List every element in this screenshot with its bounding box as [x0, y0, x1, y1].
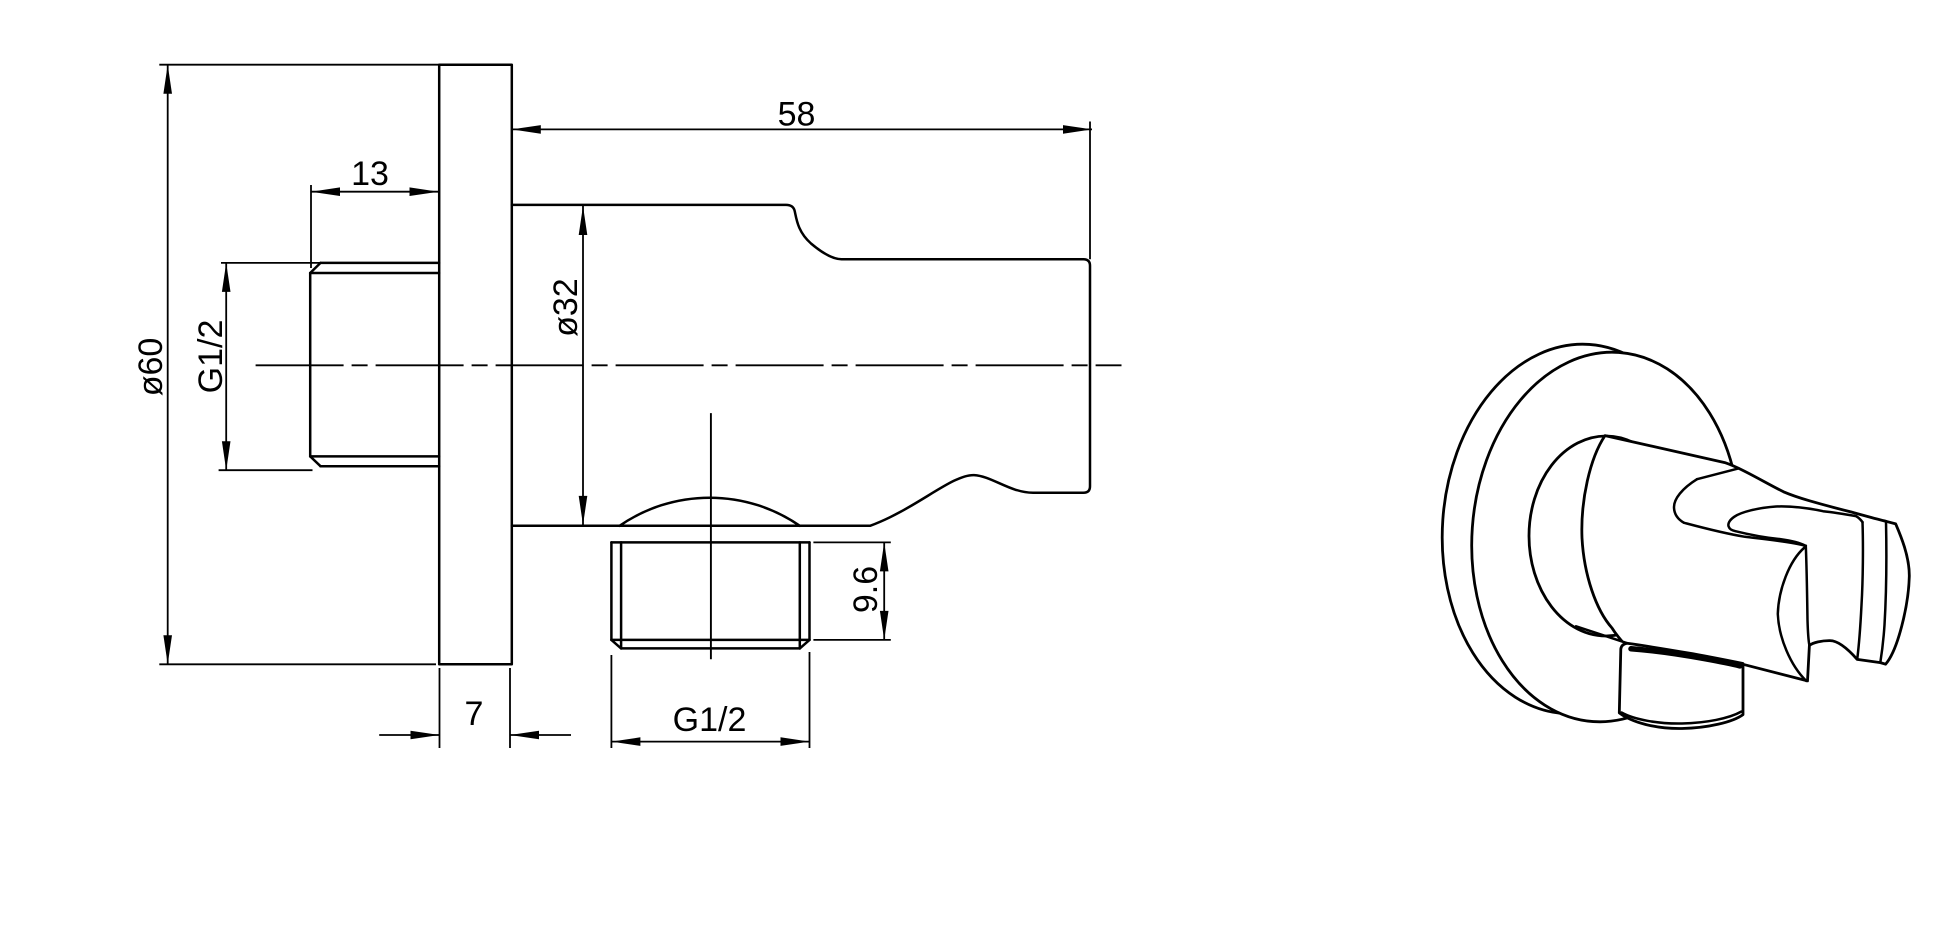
svg-text:ø32: ø32	[547, 278, 585, 337]
svg-text:13: 13	[351, 155, 389, 193]
svg-text:ø60: ø60	[132, 338, 170, 397]
svg-text:9.6: 9.6	[847, 566, 885, 613]
svg-text:7: 7	[465, 695, 484, 733]
svg-text:G1/2: G1/2	[192, 320, 230, 394]
svg-text:G1/2: G1/2	[673, 701, 747, 739]
svg-text:58: 58	[778, 96, 816, 134]
